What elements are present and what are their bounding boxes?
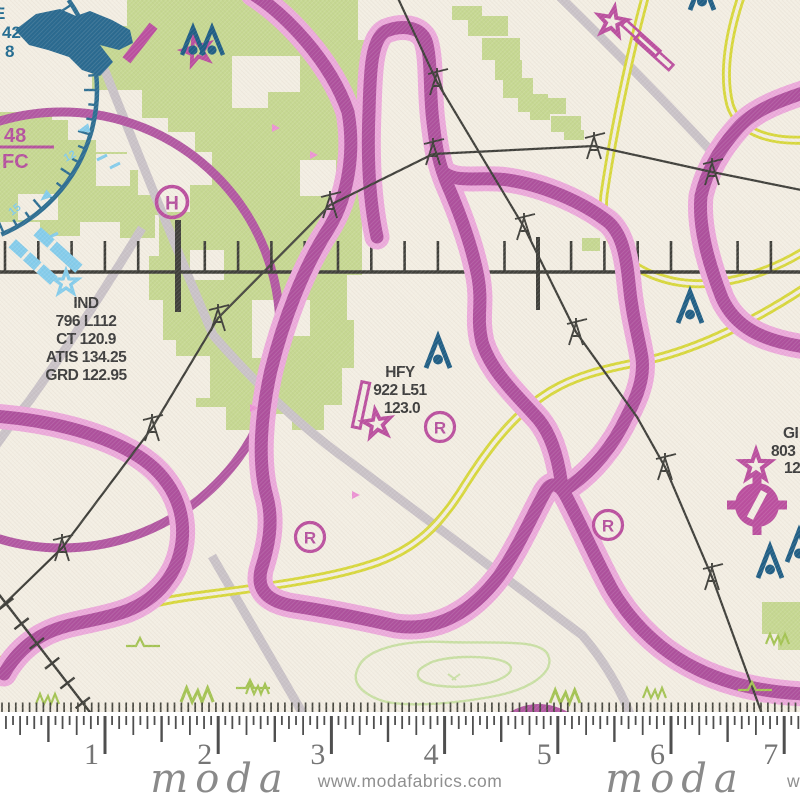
svg-text:42: 42 [2, 23, 21, 42]
svg-text:GI: GI [783, 425, 799, 442]
svg-text:922 L51: 922 L51 [373, 382, 427, 399]
svg-text:ATIS 134.25: ATIS 134.25 [46, 349, 127, 366]
svg-text:R: R [602, 517, 614, 536]
svg-text:796 L112: 796 L112 [56, 313, 117, 330]
ruler-number: 3 [310, 738, 325, 771]
ruler-number: 5 [537, 738, 552, 771]
svg-text:CT 120.9: CT 120.9 [56, 331, 117, 348]
svg-text:H: H [165, 194, 179, 215]
moda-logo: moda [605, 756, 744, 800]
ruler-number: 1 [84, 738, 99, 771]
svg-text:803: 803 [771, 443, 796, 460]
moda-logo: moda [150, 756, 289, 800]
svg-text:FC: FC [2, 151, 29, 173]
svg-text:12: 12 [784, 460, 800, 477]
selvage-url: www.modafabrics.com [317, 771, 503, 791]
svg-text:R: R [304, 529, 316, 548]
fabric-swatch-photo: 12 15 [0, 0, 800, 800]
svg-text:R: R [434, 419, 446, 438]
svg-text:48: 48 [4, 125, 26, 147]
selvage: 1234567 moda www.modafabrics.com moda w [0, 712, 800, 800]
svg-text:IND: IND [73, 295, 99, 312]
ruler-number: 7 [763, 738, 778, 771]
svg-text:GRD 122.95: GRD 122.95 [45, 367, 127, 384]
svg-text:E: E [0, 4, 5, 23]
ruler-number: 4 [424, 738, 439, 771]
chart-fabric-art: 12 15 [0, 0, 800, 800]
svg-text:123.0: 123.0 [384, 400, 420, 417]
svg-text:HFY: HFY [385, 364, 416, 381]
selvage-url-partial: w [786, 771, 800, 791]
land-patch [582, 238, 600, 251]
svg-text:8: 8 [5, 42, 14, 61]
